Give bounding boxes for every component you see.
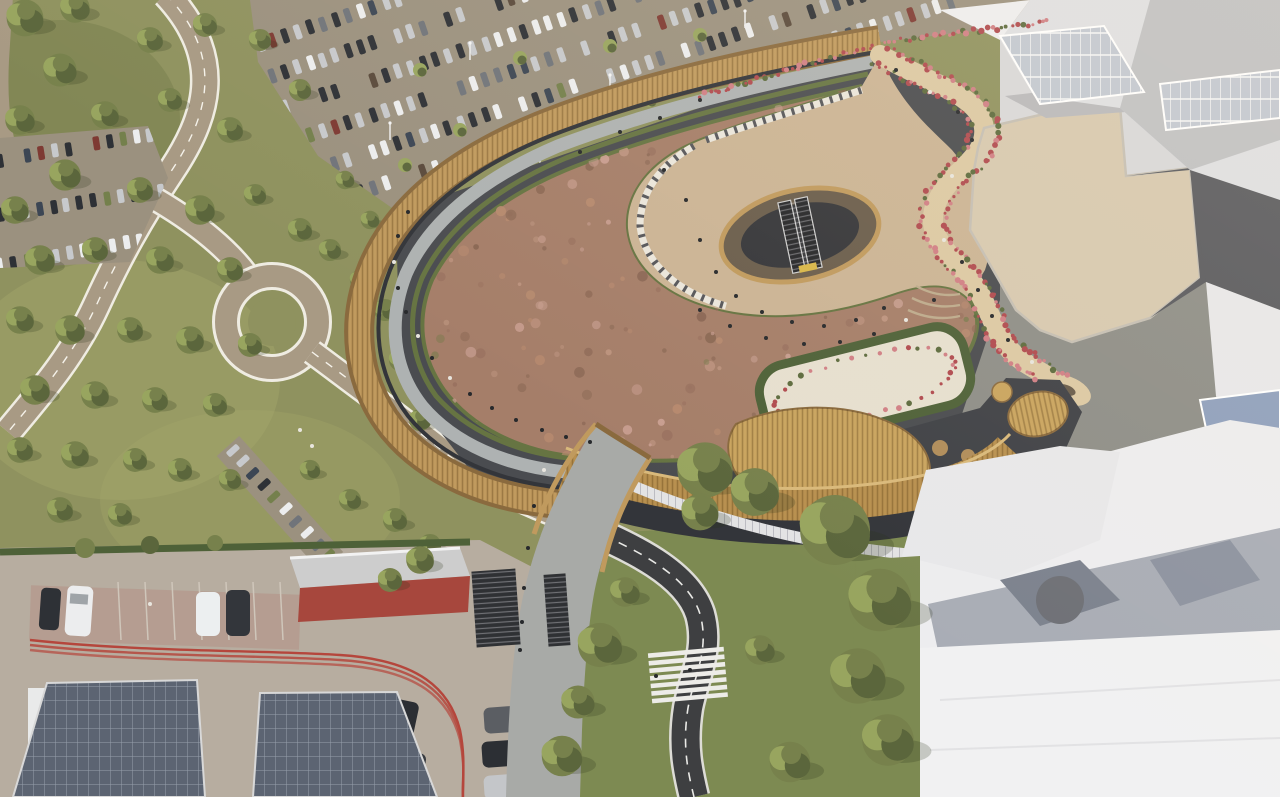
aerial-rendering bbox=[0, 0, 1280, 797]
sunlight-overlay bbox=[0, 0, 1280, 797]
rendering-canvas bbox=[0, 0, 1280, 797]
